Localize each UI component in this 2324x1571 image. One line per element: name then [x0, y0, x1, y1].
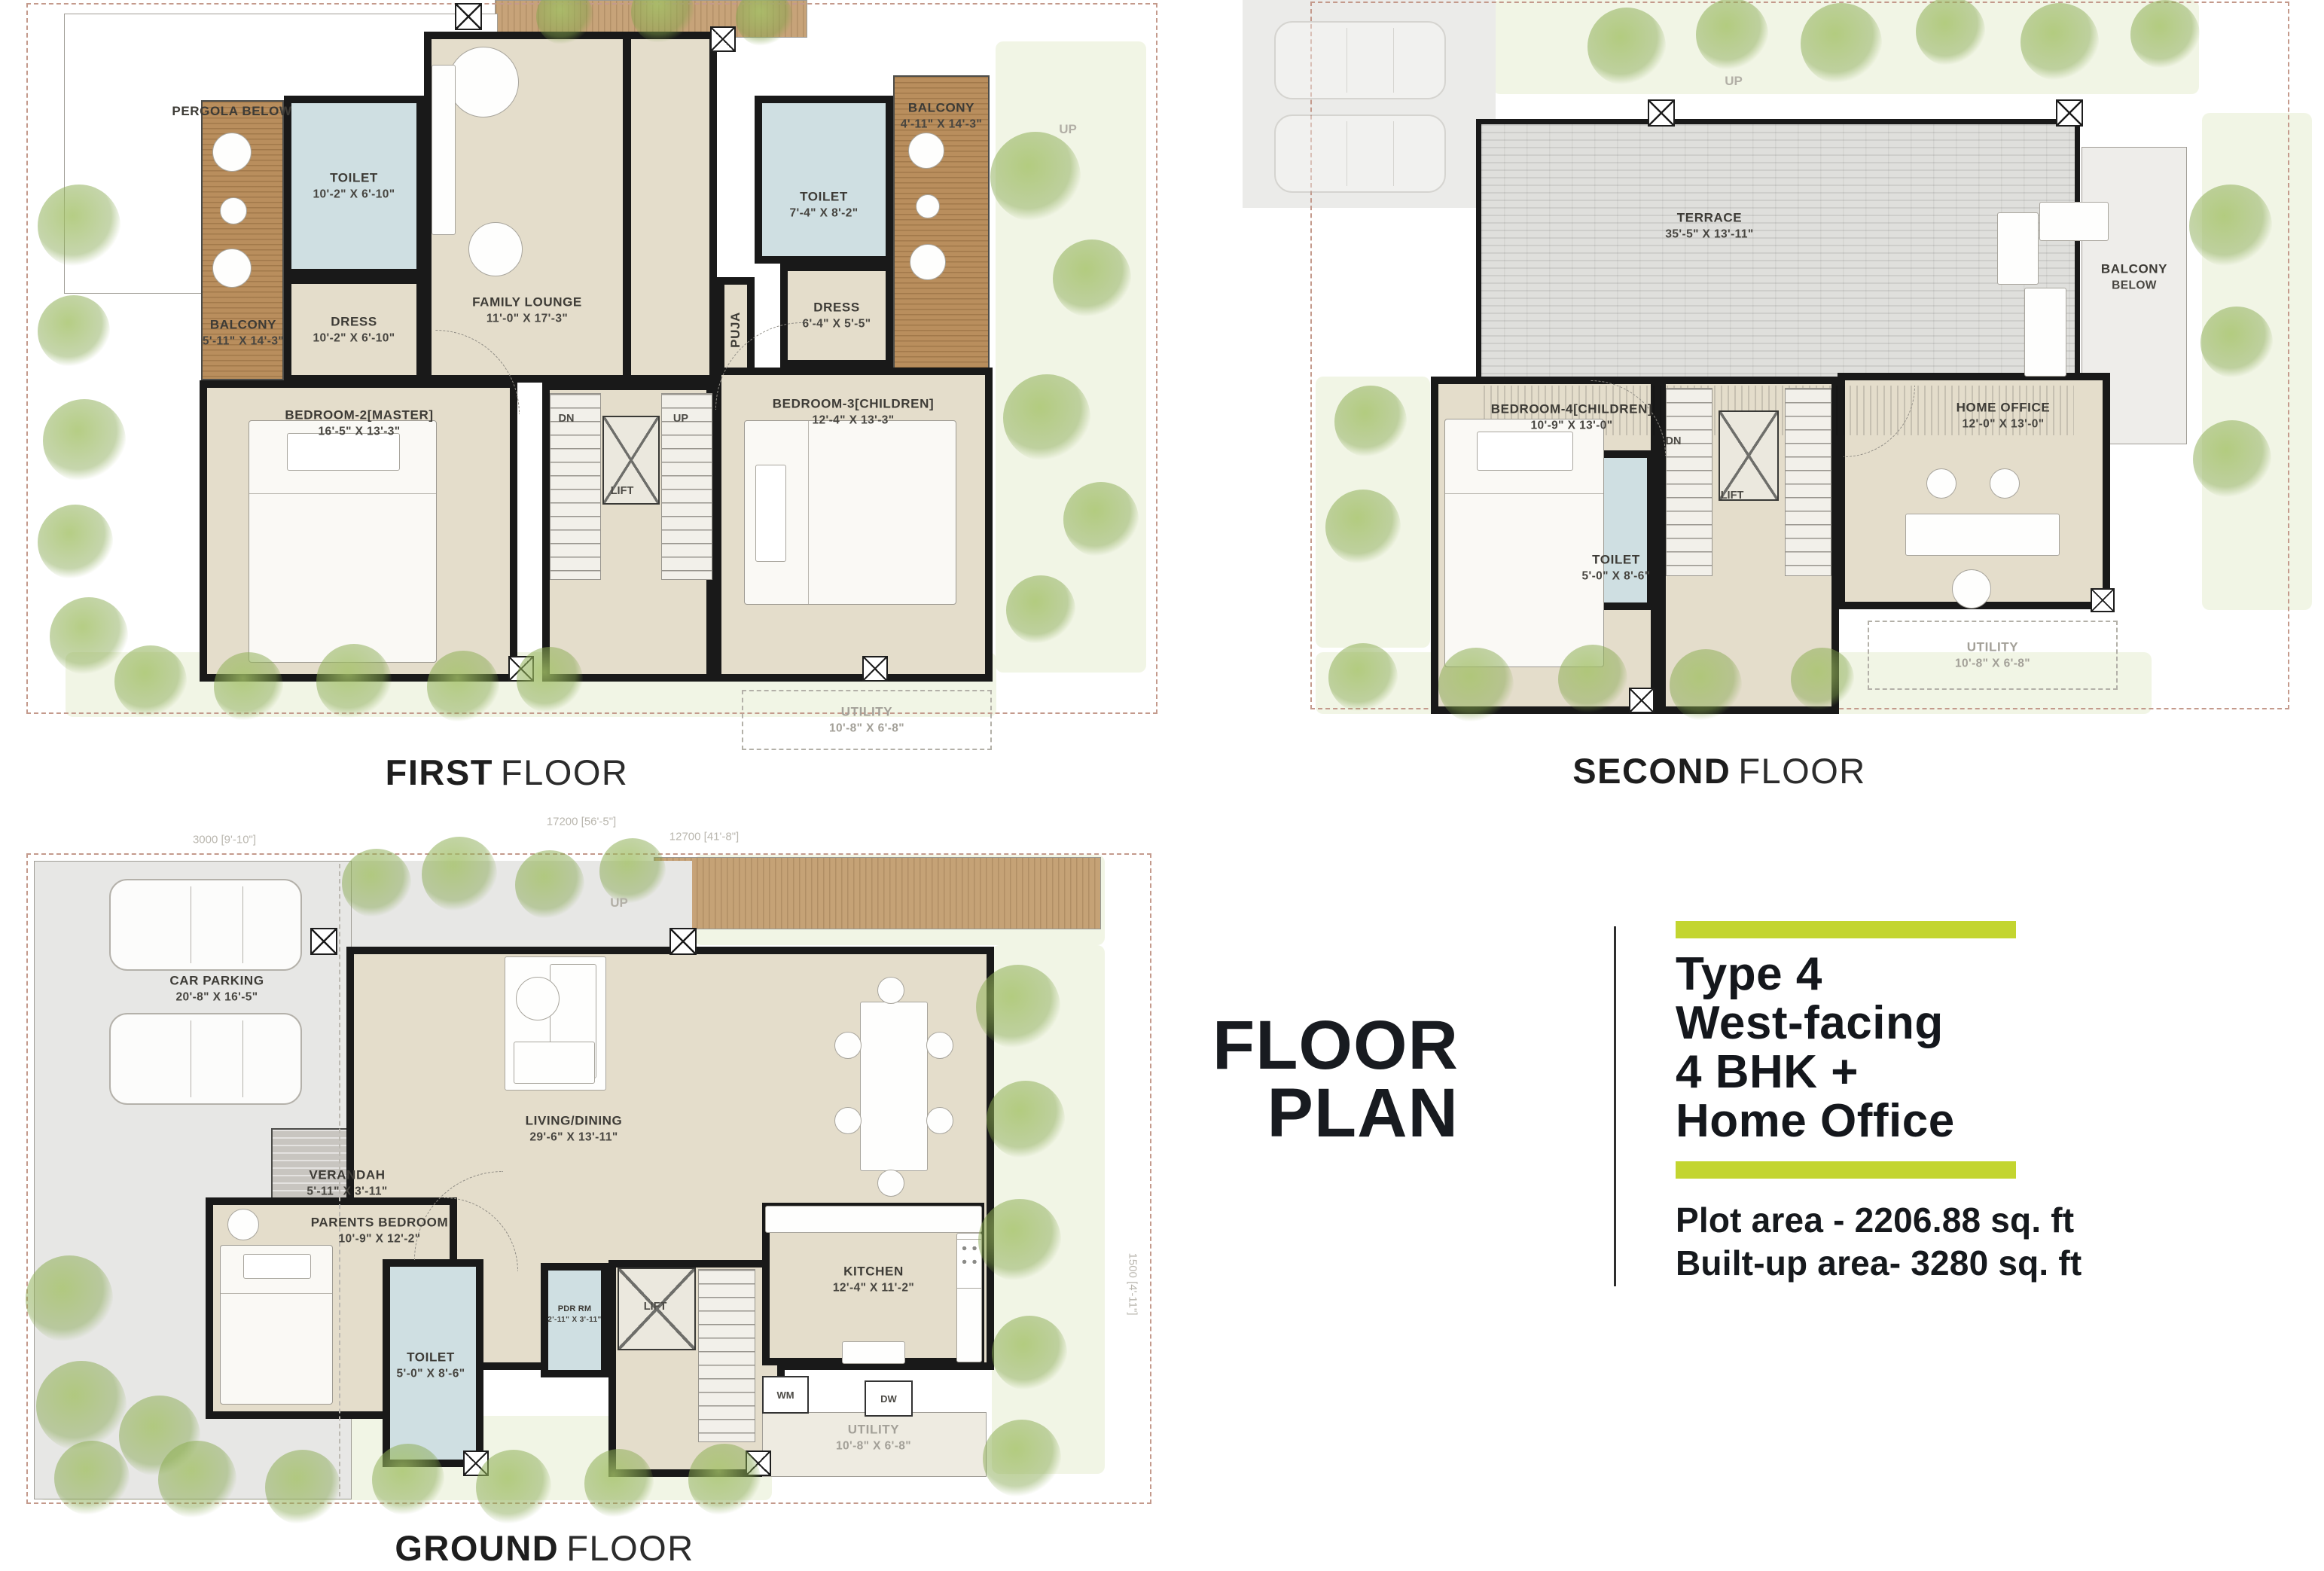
- annotation-lift: LIFT: [1721, 490, 1744, 502]
- room-label-toilet: TOILET5'-0" X 8'-6": [396, 1350, 465, 1381]
- tree: [1670, 649, 1742, 721]
- tree: [1006, 575, 1075, 645]
- tree: [316, 644, 392, 719]
- annotation-up: UP: [610, 895, 628, 911]
- room-label-home-office: HOME OFFICE12'-0" X 13'-0": [1956, 401, 2051, 432]
- tree: [599, 838, 666, 904]
- tree: [427, 651, 499, 723]
- tree: [1696, 0, 1768, 71]
- tree: [584, 1449, 654, 1518]
- room-label-pergola: PERGOLA BELOW: [172, 104, 291, 119]
- tree: [476, 1450, 551, 1525]
- column-marker: [1629, 688, 1655, 713]
- furniture-round: [834, 1107, 862, 1134]
- tree: [50, 597, 128, 676]
- tree: [1587, 8, 1666, 86]
- bed-pillow: [243, 1254, 312, 1280]
- caption-light: FLOOR: [566, 1528, 694, 1568]
- furniture-round: [468, 222, 523, 276]
- headline-line-2: West-facing: [1676, 999, 2308, 1048]
- column-marker: [710, 26, 736, 52]
- tree: [1791, 648, 1854, 711]
- caption-light: FLOOR: [501, 752, 628, 792]
- headline-line-4: Home Office: [1676, 1097, 2308, 1145]
- furniture-rect: [765, 1206, 982, 1233]
- tree: [517, 647, 583, 713]
- annotation-up: UP: [673, 413, 688, 425]
- tree: [158, 1441, 236, 1519]
- tree: [114, 645, 187, 718]
- bed-blanket-line: [808, 421, 809, 604]
- tree: [422, 837, 497, 912]
- room-label-car-parking: CAR PARKING20'-8" X 16'-5": [169, 974, 264, 1005]
- furniture-round: [227, 1209, 259, 1240]
- built-up-area-text: Built-up area- 3280 sq. ft: [1676, 1242, 2308, 1285]
- room-label-living-dining: LIVING/DINING29'-6" X 13'-11": [526, 1114, 623, 1145]
- furniture-round: [1926, 468, 1956, 499]
- room-label-toilet-3: TOILET5'-0" X 8'-6": [1581, 553, 1650, 584]
- tree: [265, 1450, 340, 1525]
- tree: [214, 652, 283, 721]
- room-label-toilet-2: TOILET7'-4" X 8'-2": [789, 190, 858, 221]
- room-hall: [624, 32, 717, 383]
- room-label-puja: PUJA: [728, 312, 743, 348]
- headline-line-3: 4 BHK +: [1676, 1048, 2308, 1097]
- furniture-round: [834, 1032, 862, 1059]
- bed: [220, 1245, 333, 1405]
- tree: [515, 850, 584, 920]
- floor-plan-sheet: { "info_panel": { "title_lines": ["FLOOR…: [0, 0, 2324, 1571]
- tree: [987, 1081, 1065, 1159]
- room-label-verandah: VERANDAH5'-11" X 3'-11": [307, 1168, 387, 1199]
- car: [1274, 114, 1446, 193]
- divider-line: [1614, 926, 1616, 1286]
- stairs: [698, 1269, 755, 1442]
- tree: [54, 1441, 130, 1516]
- unit-type-heading: Type 4 West-facing 4 BHK + Home Office: [1676, 950, 2308, 1145]
- room-label-family-lounge: FAMILY LOUNGE11'-0" X 17'-3": [472, 295, 582, 326]
- furniture-rect: [860, 1002, 928, 1171]
- info-panel-right: Type 4 West-facing 4 BHK + Home Office P…: [1676, 915, 2308, 1285]
- annotation-dn: DN: [1666, 435, 1682, 447]
- room-toilet-2: [755, 96, 893, 264]
- furniture-rect: [514, 1042, 595, 1084]
- caption-bold: FIRST: [386, 752, 493, 792]
- tree: [36, 1361, 127, 1451]
- appliance-dw: DW: [865, 1380, 913, 1417]
- car: [109, 1013, 302, 1105]
- furniture-round: [1990, 468, 2020, 499]
- tree: [1325, 490, 1401, 565]
- furniture-rect: [1997, 212, 2039, 285]
- car-cabin: [191, 886, 243, 962]
- room-label-dress-2: DRESS6'-4" X 5'-5": [802, 300, 871, 331]
- car: [109, 879, 302, 971]
- column-marker: [1648, 99, 1675, 127]
- bed-pillow: [1477, 432, 1573, 470]
- bed: [249, 420, 437, 663]
- car: [1274, 21, 1446, 99]
- furniture-round: [220, 197, 247, 224]
- tree: [976, 965, 1060, 1049]
- annotation-up: UP: [1059, 122, 1077, 137]
- furniture-rect: [2039, 202, 2109, 241]
- floor-plan-title: FLOOR PLAN: [1205, 1011, 1459, 1147]
- appliance-wm: WM: [762, 1376, 809, 1414]
- tree: [43, 399, 126, 482]
- furniture-round: [1952, 569, 1991, 609]
- column-marker: [862, 656, 888, 682]
- bed: [744, 420, 956, 605]
- furniture-round: [916, 194, 940, 218]
- caption-light: FLOOR: [1738, 751, 1865, 791]
- headline-line-1: Type 4: [1676, 950, 2308, 999]
- furniture-round: [516, 977, 560, 1020]
- annotation-lift: LIFT: [644, 1301, 667, 1313]
- car-cabin: [1347, 28, 1393, 93]
- floor-plan-second: TERRACE35'-5" X 13'-11"BALCONYBELOWBEDRO…: [1243, 0, 2324, 721]
- room-label-utility: UTILITY10'-8" X 6'-8": [836, 1423, 911, 1454]
- column-marker: [2091, 588, 2115, 612]
- room-label-utility: UTILITY10'-8" X 6'-8": [1955, 640, 2030, 671]
- accent-bar-bottom: [1676, 1161, 2016, 1179]
- tree: [38, 295, 110, 368]
- column-marker: [2056, 99, 2083, 127]
- bed: [1444, 419, 1604, 667]
- room-label-balcony-left: BALCONY5'-11" X 14'-3": [203, 318, 284, 349]
- car-cabin: [1347, 121, 1393, 186]
- column-marker: [669, 928, 697, 955]
- tree: [1438, 648, 1514, 723]
- second-floor-caption: SECONDFLOOR: [1572, 750, 1866, 792]
- room-label-utility: UTILITY10'-8" X 6'-8": [829, 705, 904, 736]
- tree: [372, 1444, 444, 1516]
- bed-blanket-line: [1445, 493, 1603, 494]
- room-label-bedroom-4-children: BEDROOM-4[CHILDREN]10'-9" X 13'-0": [1491, 402, 1652, 433]
- furniture-round: [448, 47, 519, 117]
- tree: [983, 1420, 1061, 1498]
- annotation-lift: LIFT: [611, 485, 634, 497]
- tree: [2130, 0, 2200, 69]
- caption-bold: SECOND: [1572, 751, 1731, 791]
- tree: [2193, 420, 2271, 499]
- annotation-up: UP: [1725, 74, 1743, 89]
- bed-pillow: [287, 433, 401, 471]
- bed-pillow: [755, 465, 786, 561]
- dimension-label: 17200 [56'-5"]: [547, 816, 616, 828]
- furniture-rect: [1905, 514, 2060, 556]
- lift-shaft: [1719, 410, 1779, 501]
- dimension-label: 12700 [41'-8"]: [669, 831, 739, 843]
- tree: [1003, 374, 1090, 462]
- room-label-bedroom-3-children: BEDROOM-3[CHILDREN]12'-4" X 13'-3": [773, 397, 934, 428]
- column-marker: [455, 3, 482, 30]
- tree: [2189, 185, 2272, 267]
- tree: [1558, 645, 1627, 714]
- first-floor-caption: FIRSTFLOOR: [386, 752, 629, 793]
- floor-plan-ground: CAR PARKING20'-8" X 16'-5"VERANDAH5'-11"…: [23, 817, 1160, 1544]
- furniture-round: [212, 133, 252, 172]
- room-label-parents-bedroom: PARENTS BEDROOM10'-9" X 12'-2": [311, 1216, 448, 1246]
- dimension-label: 3000 [9'-10"]: [193, 834, 256, 847]
- furniture-round: [877, 977, 904, 1004]
- tree: [1334, 386, 1407, 458]
- caption-bold: GROUND: [395, 1528, 559, 1568]
- furniture-rect: [842, 1341, 905, 1364]
- tree: [38, 505, 113, 580]
- dimension-label: 1500 [4'-11"]: [1127, 1253, 1139, 1316]
- tree: [688, 1444, 761, 1516]
- title-line-2: PLAN: [1205, 1079, 1459, 1147]
- room-label-bedroom-2-master: BEDROOM-2[MASTER]16'-5" X 13'-3": [285, 408, 433, 439]
- annotation-dn: DN: [559, 413, 575, 425]
- stairs: [1785, 388, 1831, 576]
- tree: [26, 1255, 113, 1343]
- furniture-round: [910, 244, 946, 280]
- room-label-kitchen: KITCHEN12'-4" X 11'-2": [833, 1264, 914, 1295]
- accent-bar-top: [1676, 921, 2016, 938]
- tree: [990, 132, 1081, 222]
- tree: [1053, 239, 1131, 318]
- room-label-toilet-1: TOILET10'-2" X 6'-10": [313, 171, 395, 202]
- furniture-round: [212, 249, 252, 288]
- tree: [2200, 307, 2273, 379]
- tree: [978, 1199, 1061, 1282]
- floor-plan-first: PERGOLA BELOWBALCONY5'-11" X 14'-3"TOILE…: [23, 0, 1167, 721]
- stairs: [550, 393, 601, 580]
- area-stats: Plot area - 2206.88 sq. ft Built-up area…: [1676, 1199, 2308, 1285]
- plot-area-text: Plot area - 2206.88 sq. ft: [1676, 1199, 2308, 1242]
- tree: [992, 1316, 1067, 1391]
- room-label-terrace: TERRACE35'-5" X 13'-11": [1665, 211, 1753, 242]
- furniture-round: [877, 1170, 904, 1197]
- furniture-round: [908, 133, 944, 169]
- column-marker: [310, 928, 337, 955]
- tree: [342, 849, 411, 918]
- tree: [2021, 3, 2099, 81]
- title-line-1: FLOOR: [1205, 1011, 1459, 1079]
- room-label-balcony-below: BALCONYBELOW: [2101, 262, 2167, 293]
- tree: [38, 185, 120, 267]
- tree: [1916, 0, 1985, 66]
- tree: [1063, 482, 1139, 557]
- ground-floor-caption: GROUNDFLOOR: [395, 1527, 694, 1569]
- tree: [1801, 3, 1882, 84]
- furniture-round: [926, 1032, 953, 1059]
- bed-blanket-line: [249, 493, 436, 494]
- furniture-round: [926, 1107, 953, 1134]
- tree: [1328, 643, 1398, 712]
- car-cabin: [191, 1020, 243, 1097]
- furniture-rect: [2024, 288, 2066, 377]
- info-panel: FLOOR PLAN Type 4 West-facing 4 BHK + Ho…: [1205, 915, 2319, 1382]
- bed-blanket-line: [221, 1293, 332, 1294]
- room-label-dress-1: DRESS10'-2" X 6'-10": [313, 314, 395, 345]
- room-label-pdr-rm: PDR RM2'-11" X 3'-11": [547, 1304, 601, 1324]
- furniture-rect: [432, 65, 456, 235]
- stairs: [1666, 388, 1713, 576]
- room-label-balcony-right: BALCONY4'-11" X 14'-3": [901, 101, 982, 132]
